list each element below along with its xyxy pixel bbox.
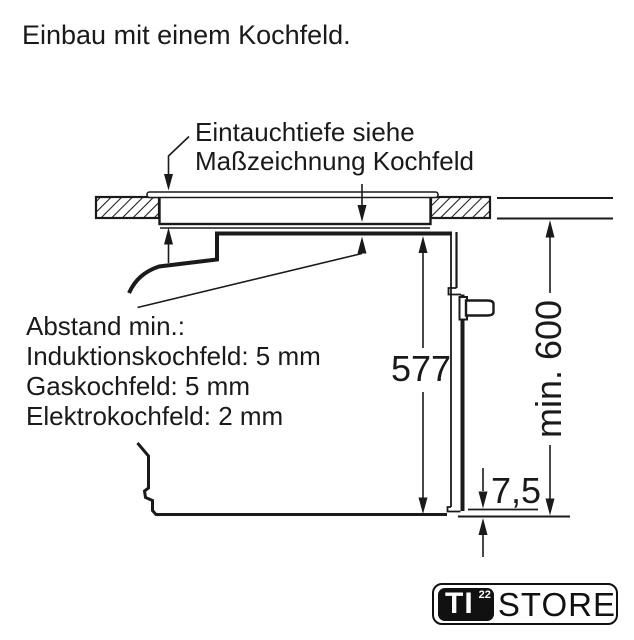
worktop-left-hatch xyxy=(96,197,159,218)
store-wordmark: STORE xyxy=(498,588,616,621)
dim-line-min600 xyxy=(546,220,555,516)
worktop-surface-lines xyxy=(497,198,613,219)
depth-leader-arrow xyxy=(164,137,189,191)
installation-drawing xyxy=(0,0,634,640)
installation-diagram-page: Einbau mit einem Kochfeld. Eintauchtiefe… xyxy=(0,0,634,640)
store-badge-superscript: 22 xyxy=(479,589,491,601)
clearance-leader-arrow xyxy=(138,237,367,308)
door-gap-reference-lines xyxy=(458,510,570,517)
store-badge-text: TI xyxy=(445,589,474,619)
store-badge: TI 22 xyxy=(438,588,494,621)
oven-door-handle xyxy=(460,297,494,320)
worktop-right-hatch xyxy=(431,197,490,218)
cooktop-underside-arrow xyxy=(164,228,173,264)
oven-top-outline xyxy=(129,234,452,294)
cooktop-top-plate xyxy=(147,192,438,198)
store-watermark: TI 22 STORE xyxy=(432,583,618,625)
cooktop-body xyxy=(160,197,431,229)
oven-front-frame xyxy=(448,232,462,512)
oven-bottom-outline xyxy=(138,443,448,515)
dim-line-577 xyxy=(419,236,428,514)
dim-line-75 xyxy=(479,468,488,557)
